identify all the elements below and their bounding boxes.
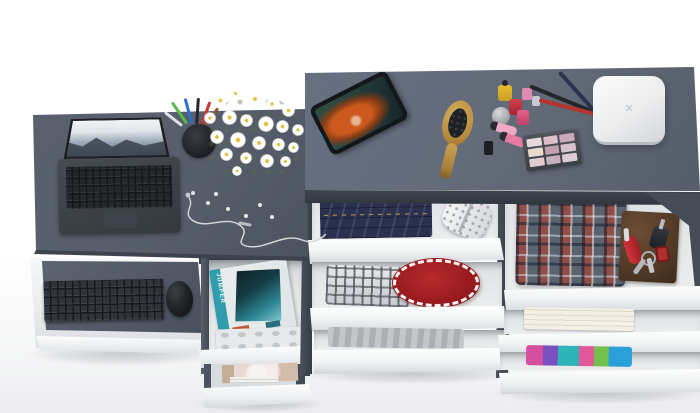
x-emblem-icon: ✕ — [624, 104, 633, 115]
eyeshadow-pan — [559, 133, 575, 143]
daisy-flower — [276, 120, 289, 133]
daisy-flower — [230, 132, 246, 148]
tablet-screen-character — [314, 75, 404, 151]
eyeshadow-palette — [522, 128, 582, 171]
right-drawer3-front — [497, 368, 700, 394]
middle-drawer3-front — [310, 348, 512, 374]
daisy-flower — [288, 142, 299, 153]
daisy-flower — [266, 98, 278, 110]
wireless-keyboard — [44, 279, 165, 322]
folded-gray-fabric — [328, 327, 464, 349]
daisy-flower — [204, 112, 216, 124]
daisy-flower — [230, 88, 241, 99]
photo-magazine-pages — [230, 377, 278, 383]
daisy-bouquet — [196, 86, 314, 194]
laptop-base — [58, 157, 181, 235]
daisy-flower — [240, 152, 252, 164]
folded-red-plaid-shirt — [515, 195, 627, 287]
red-keychain-fob — [655, 245, 670, 263]
daisy-flower — [220, 148, 233, 161]
daisy-flower — [292, 124, 304, 136]
daisy-flower — [280, 156, 291, 167]
earphones-cable — [180, 190, 330, 254]
laptop-touchpad — [105, 212, 137, 229]
mountain-silhouette — [66, 119, 167, 157]
daisy-flower — [240, 114, 253, 127]
laptop-keyboard — [66, 165, 173, 209]
daisy-flower — [222, 110, 237, 125]
folded-towel — [524, 307, 634, 331]
daisy-flower — [214, 94, 227, 107]
mascara — [484, 141, 493, 155]
daisy-flower — [248, 92, 262, 106]
middle-drawer1-front — [306, 238, 504, 264]
eyeshadow-pan — [543, 135, 559, 145]
tablet — [312, 80, 408, 150]
daisy-flower — [282, 104, 295, 117]
colorful-folded-clothes — [526, 345, 632, 367]
white-keepsake-box: ✕ — [593, 76, 665, 145]
eyeshadow-pan — [561, 143, 577, 153]
perfume-mini-pink — [522, 88, 532, 100]
daisy-flower — [260, 154, 274, 168]
eyeshadow-pan — [528, 147, 544, 157]
laptop-screen — [63, 117, 170, 159]
red-round-garment — [392, 258, 480, 308]
eyeshadow-pan — [544, 145, 560, 155]
laptop-wallpaper-mountains — [66, 119, 167, 157]
tablet-body — [308, 69, 409, 156]
daisy-flower — [272, 138, 285, 151]
eyeshadow-pan — [526, 137, 542, 147]
hairbrush-handle — [439, 142, 458, 180]
nail-polish-pink — [517, 110, 529, 125]
furniture-render-scene: JUMPER — [0, 0, 700, 413]
daisy-flower — [232, 166, 242, 176]
eyeshadow-pan — [562, 153, 578, 163]
daisy-flower — [210, 130, 224, 144]
daisy-flower — [258, 116, 274, 132]
eyeshadow-pan — [546, 155, 562, 165]
eyeshadow-pan — [529, 157, 545, 167]
daisy-flower — [252, 136, 266, 150]
laptop — [57, 117, 181, 235]
